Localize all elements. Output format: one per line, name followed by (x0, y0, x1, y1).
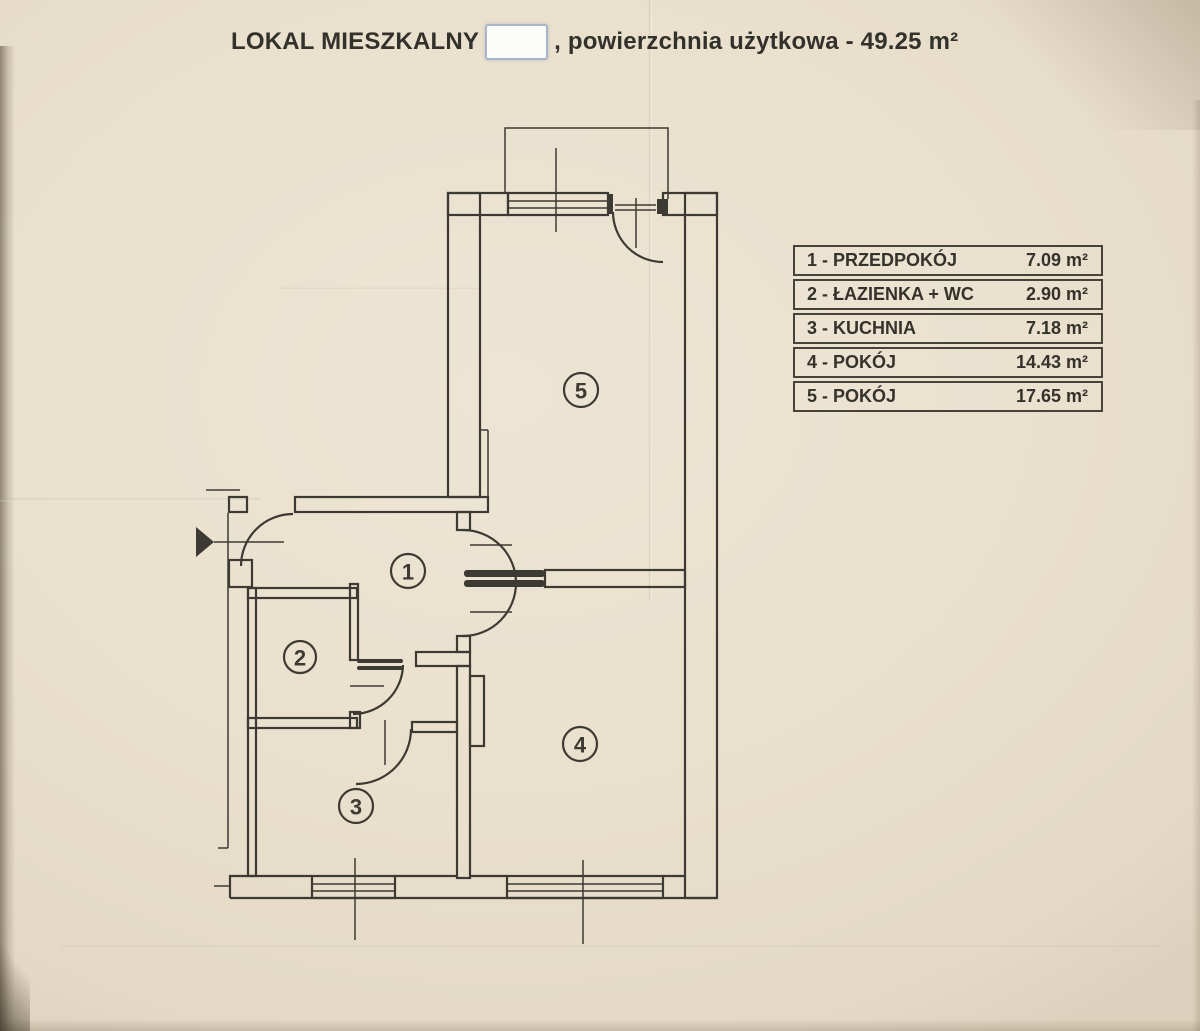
balcony-door (613, 198, 663, 262)
entrance-door-arc (241, 514, 293, 566)
room-number: 3 (350, 795, 362, 820)
room-label-5: 5 (564, 373, 598, 407)
bathroom-door-arc (353, 665, 403, 714)
room5-room4-partition (545, 570, 685, 587)
hall-double-door (416, 512, 545, 666)
room-label-4: 4 (563, 727, 597, 761)
balcony (505, 128, 668, 232)
door-leaf (357, 659, 403, 663)
hallway-top-wall (295, 497, 488, 512)
entrance-arrow-icon (196, 527, 214, 557)
kitchen-door-arc (356, 729, 411, 784)
wall-ledge (416, 652, 470, 666)
bathroom-door (350, 659, 403, 714)
building-outline (218, 513, 228, 848)
room4-west-wall (457, 666, 484, 878)
room-label-3: 3 (339, 789, 373, 823)
door-arc-room4 (463, 583, 516, 636)
room-label-1: 1 (391, 554, 425, 588)
room5-window (508, 193, 608, 215)
scanned-floor-plan-document: LOKAL MIESZKALNY , powierzchnia użytkowa… (0, 0, 1200, 1031)
entrance-left-jamb (229, 497, 247, 512)
room4-window (507, 860, 663, 944)
door-leaf (357, 666, 403, 670)
kitchen-window (312, 858, 395, 940)
room-number: 4 (574, 733, 587, 758)
bottom-exterior-wall (214, 858, 717, 944)
room-number: 5 (575, 379, 587, 404)
balcony-door-arc (613, 212, 663, 262)
west-wall (248, 588, 256, 876)
door-leaf (464, 570, 545, 577)
entrance-area (196, 490, 488, 848)
room-label-2: 2 (284, 641, 316, 673)
room5-west-wall (448, 193, 480, 497)
door-jamb (607, 194, 613, 214)
bathroom-top-wall (248, 588, 357, 598)
corridor-south-wall (412, 722, 457, 732)
right-exterior-wall (685, 193, 717, 898)
wall-pilaster (470, 676, 484, 746)
floor-plan-drawing: 1 2 3 4 5 (0, 0, 1200, 1031)
kitchen-door (356, 720, 457, 784)
room-number: 2 (294, 646, 306, 671)
bathroom-bottom-wall (248, 718, 357, 728)
room-number: 1 (402, 560, 414, 585)
bathroom-walls (248, 584, 360, 876)
door-leaf (464, 580, 545, 587)
